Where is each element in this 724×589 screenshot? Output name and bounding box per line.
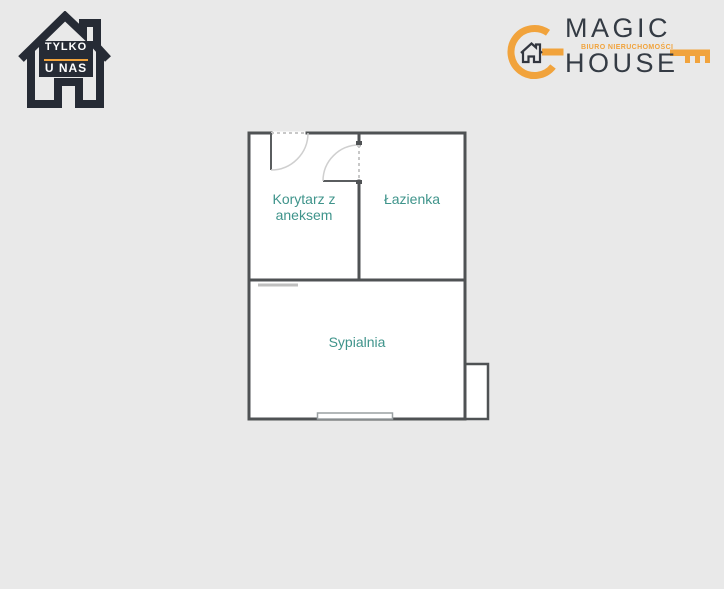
key-bow-bar <box>542 49 564 56</box>
logo-house-roof <box>521 44 542 54</box>
logo-house-body <box>523 52 540 63</box>
page-background: TYLKO U NAS MAGIC BIURO NIERUCHOMOŚCI HO… <box>0 0 724 589</box>
bathroom-door-jamb-top <box>356 141 362 145</box>
bathroom-door-jamb-bottom <box>356 180 362 184</box>
brand-name-top: MAGIC <box>565 15 671 42</box>
balcony-floor <box>465 363 489 420</box>
tylko-u-nas-badge: TYLKO U NAS <box>17 11 112 109</box>
floor-plan: Korytarz z aneksem Łazienka Sypialnia <box>240 125 496 427</box>
floor-plan-drawing <box>240 125 496 427</box>
room-label-lazienka: Łazienka <box>360 191 464 207</box>
room-label-sypialnia: Sypialnia <box>250 334 464 350</box>
apartment-floor <box>248 132 467 421</box>
magic-house-logo: MAGIC BIURO NIERUCHOMOŚCI HOUSE <box>501 16 724 86</box>
brand-name-bottom: HOUSE <box>565 50 679 77</box>
room-label-korytarz: Korytarz z aneksem <box>250 191 358 223</box>
badge-line2: U NAS <box>39 62 93 74</box>
bedroom-window <box>318 413 393 419</box>
badge-line1: TYLKO <box>39 42 93 53</box>
